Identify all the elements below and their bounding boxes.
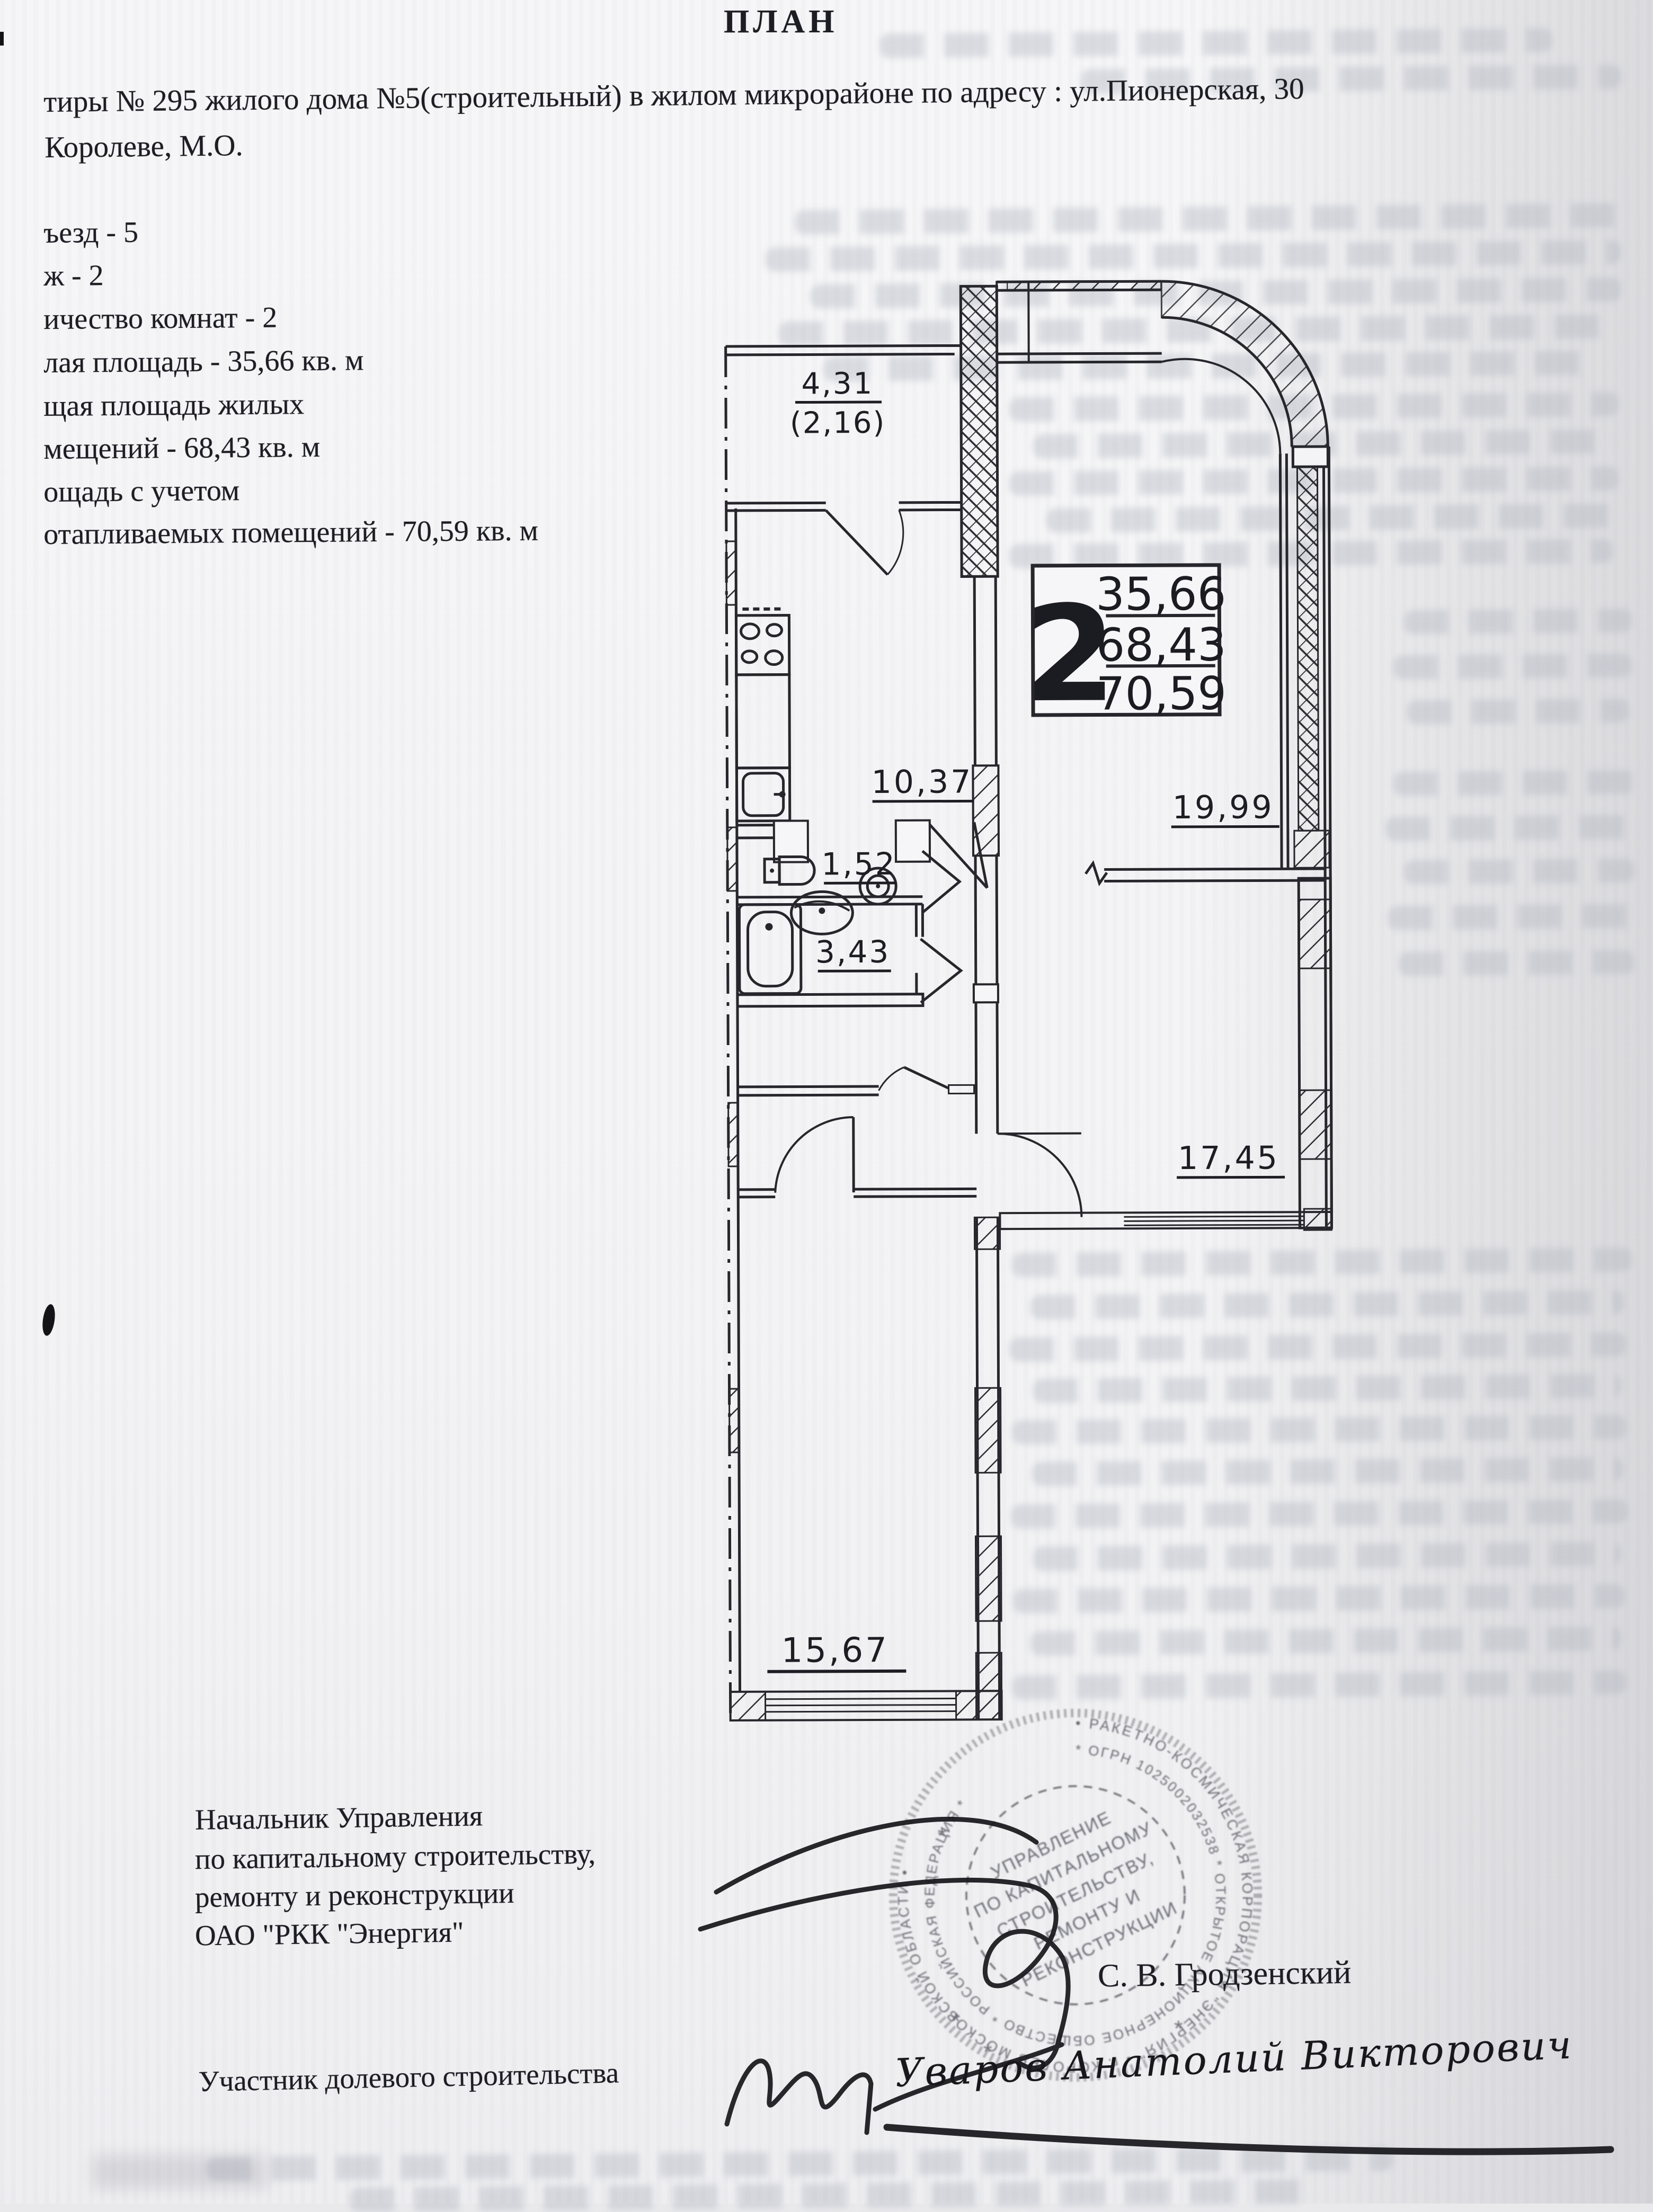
bearing-wall-column bbox=[961, 286, 998, 576]
scanned-document-page: ПЛАН тиры № 295 жилого дома №5(строитель… bbox=[0, 0, 1653, 2204]
svg-text:*: * bbox=[938, 1823, 946, 1848]
bath-door-leaf bbox=[921, 939, 961, 1002]
detail-floor: ж - 2 bbox=[43, 258, 104, 293]
svg-text:*: * bbox=[1174, 2016, 1183, 2041]
stove-icon bbox=[736, 609, 789, 675]
detail-heated-1: ощадь с учетом bbox=[43, 474, 239, 509]
outer-wall-curve bbox=[1161, 281, 1328, 454]
room-label-kitchen: 10,37 bbox=[872, 763, 973, 801]
room-label-room17: 17,45 bbox=[1178, 1139, 1279, 1177]
outer-wall-top bbox=[997, 281, 1162, 362]
room-label-living: 19,99 bbox=[1172, 789, 1274, 826]
room17-door-leaf bbox=[998, 1134, 1081, 1134]
bathroom-bottom-wall bbox=[737, 994, 923, 1006]
kitchen-counter bbox=[736, 675, 790, 768]
outer-wall-right bbox=[1280, 447, 1331, 1228]
info-box-values: 2 35,66 68,43 70,59 bbox=[1024, 568, 1227, 732]
wc-bath-wall bbox=[737, 897, 922, 897]
hall-door-leaf bbox=[904, 1067, 948, 1089]
kitchen-sink-icon bbox=[736, 768, 789, 821]
official-title-1: Начальник Управления bbox=[195, 1799, 483, 1836]
room-label-bathroom: 3,43 bbox=[815, 934, 890, 970]
room-label-wc: 1,52 bbox=[821, 846, 896, 882]
left-outer-wall bbox=[726, 346, 740, 1720]
ink-blot bbox=[41, 1304, 57, 1336]
room-labels: 4,31 (2,16) 10,37 19,99 1,52 3,43 17,45 … bbox=[763, 365, 1287, 1671]
edge-mark bbox=[0, 32, 4, 46]
svg-text:*: * bbox=[952, 2009, 960, 2033]
official-title-4: ОАО "РКК "Энергия" bbox=[195, 1915, 464, 1952]
detail-total-area-1: щая площадь жилых bbox=[43, 387, 304, 423]
participant-name-underline bbox=[887, 2127, 1611, 2152]
room-label-balcony-total: 4,31 bbox=[801, 367, 874, 401]
info-heated-area: 70,59 bbox=[1096, 667, 1227, 721]
detail-total-area-2: мещений - 68,43 кв. м bbox=[43, 430, 320, 466]
participant-signature-squiggle bbox=[727, 2061, 871, 2133]
room15-entry bbox=[738, 1117, 977, 1197]
official-title-3: ремонту и реконструкции bbox=[195, 1876, 514, 1914]
page-title: ПЛАН bbox=[724, 3, 838, 41]
detail-rooms-count: ичество комнат - 2 bbox=[43, 301, 277, 336]
detail-living-area: лая площадь - 35,66 кв. м bbox=[43, 343, 364, 380]
kitchen-fixtures bbox=[736, 609, 789, 821]
header-line-2: Королеве, М.О. bbox=[45, 128, 243, 165]
floor-plan: 4,31 (2,16) 10,37 19,99 1,52 3,43 17,45 … bbox=[725, 281, 1333, 1720]
detail-entrance: ъезд - 5 bbox=[43, 216, 138, 250]
detail-heated-2: отапливаемых помещений - 70,59 кв. м bbox=[43, 514, 538, 551]
hall-wall bbox=[737, 1067, 974, 1095]
official-name: С. В. Гродзенский bbox=[1098, 1954, 1352, 1995]
central-wall bbox=[972, 576, 1083, 1720]
balcony-door-leaf bbox=[826, 510, 887, 575]
round-stamp: • РАКЕТНО-КОСМИЧЕСКАЯ КОРПОРАЦИЯ "ЭНЕРГИ… bbox=[893, 1713, 1258, 2077]
room15-door-arc bbox=[775, 1117, 854, 1193]
room-label-room15: 15,67 bbox=[781, 1631, 889, 1671]
info-living-area: 35,66 bbox=[1096, 568, 1227, 621]
room17-bottom-wall bbox=[1000, 1209, 1331, 1231]
info-total-area: 68,43 bbox=[1096, 619, 1227, 672]
room15-bottom-wall bbox=[731, 1691, 1002, 1720]
room17-door-arc bbox=[998, 1134, 1082, 1218]
room-label-balcony-reduced: (2,16) bbox=[790, 406, 886, 441]
official-title-2: по капитальному строительству, bbox=[195, 1837, 596, 1876]
window-band-right bbox=[1297, 465, 1318, 831]
